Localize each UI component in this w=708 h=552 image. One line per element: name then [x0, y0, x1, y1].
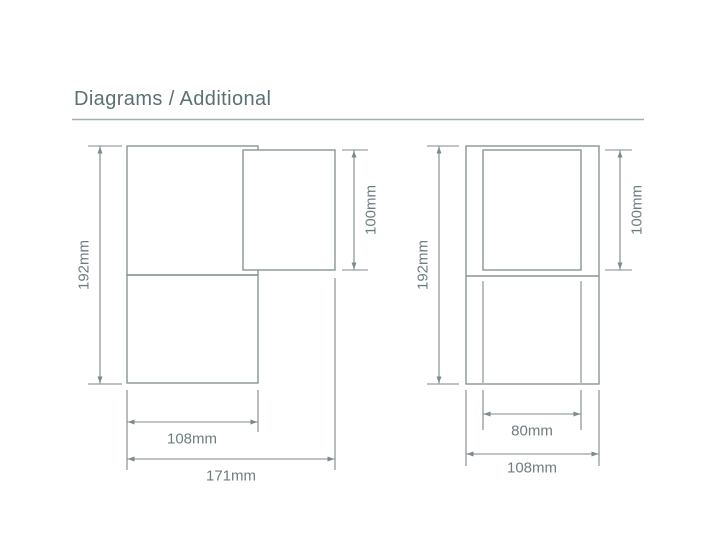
dim-right-inner-width: 80mm: [484, 414, 581, 440]
dim-left-body-width: 108mm: [128, 422, 258, 448]
dim-left-overall-width: 171mm: [128, 459, 335, 485]
diagram-right: 192mm 100mm 80mm: [415, 146, 646, 477]
dim-right-top-box-height: 100mm: [605, 150, 646, 270]
left-extension-lines: [127, 278, 335, 470]
dim-label-left-top-box-height: 100mm: [363, 185, 380, 235]
dim-label-left-overall-width: 171mm: [206, 468, 256, 485]
page: Diagrams / Additional 192mm: [0, 0, 708, 552]
left-bottom-box: [127, 275, 258, 383]
dim-right-overall-height: 192mm: [415, 146, 460, 384]
dim-label-right-overall-height: 192mm: [415, 240, 432, 290]
dim-label-right-top-box-height: 100mm: [629, 185, 646, 235]
dim-left-top-box-height: 100mm: [342, 150, 380, 270]
left-back-top-box: [127, 146, 258, 275]
dim-right-overall-width: 108mm: [467, 454, 599, 477]
diagram-canvas: 192mm 100mm 108mm: [0, 0, 708, 552]
right-inner-top-box: [483, 150, 581, 270]
dim-label-left-overall-height: 192mm: [76, 240, 93, 290]
left-front-box: [243, 150, 335, 270]
dim-left-overall-height: 192mm: [76, 146, 123, 384]
dim-label-left-body-width: 108mm: [167, 431, 217, 448]
dim-label-right-inner-width: 80mm: [511, 423, 553, 440]
diagram-left: 192mm 100mm 108mm: [76, 146, 380, 485]
right-outer-box: [466, 146, 599, 384]
dim-label-right-overall-width: 108mm: [507, 460, 557, 477]
